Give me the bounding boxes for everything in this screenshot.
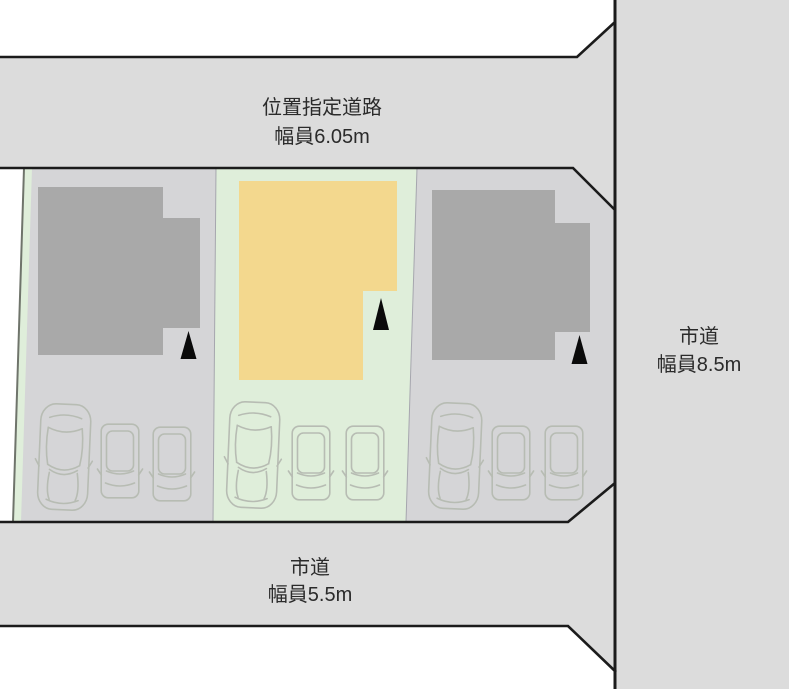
right-road-width-label: 幅員8.5m <box>657 353 741 376</box>
site-plan: 位置指定道路 幅員6.05m 市道 幅員8.5m 市道 幅員5.5m <box>0 0 789 689</box>
top-road-width-label: 幅員6.05m <box>274 125 370 148</box>
top-road-name-label: 位置指定道路 <box>262 96 382 119</box>
right-road-name-label: 市道 <box>679 325 719 348</box>
bottom-road-name-label: 市道 <box>290 556 330 579</box>
bottom-road-width-label: 幅員5.5m <box>268 583 352 606</box>
site-plan-canvas: 位置指定道路 幅員6.05m 市道 幅員8.5m 市道 幅員5.5m <box>0 0 789 689</box>
